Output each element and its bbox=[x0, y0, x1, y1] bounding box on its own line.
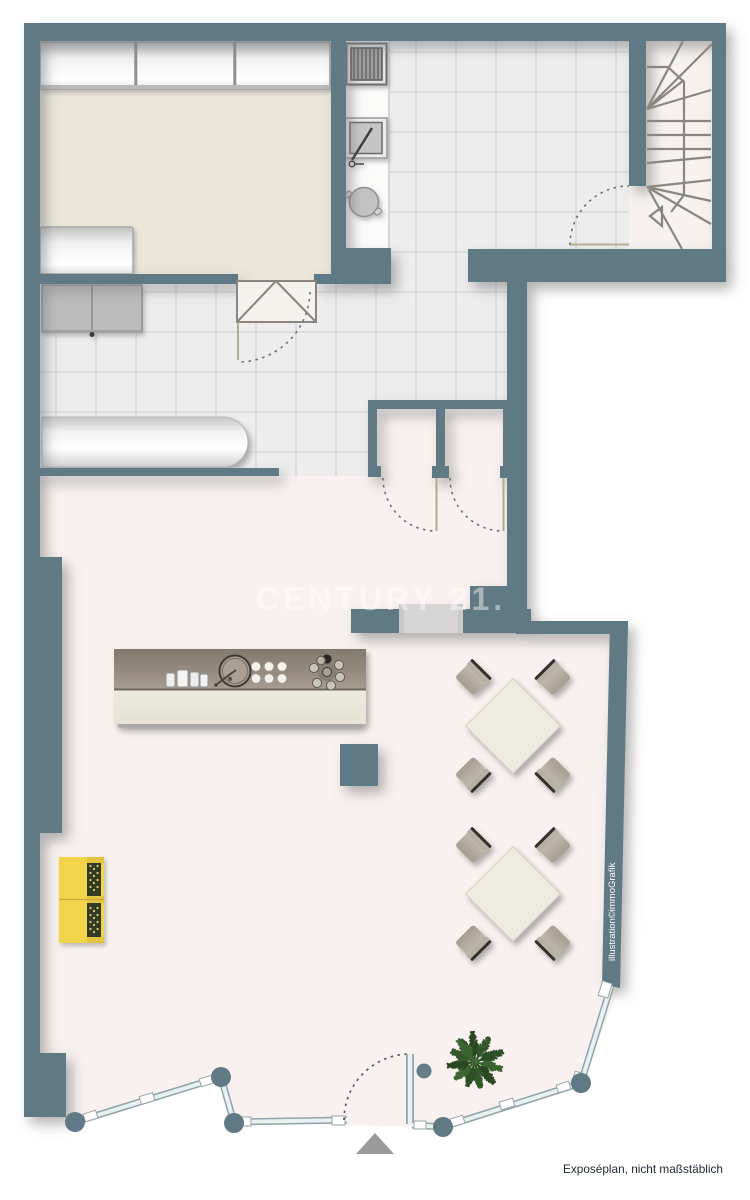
svg-text:CENTURY 21.: CENTURY 21. bbox=[256, 581, 506, 617]
svg-text:illustration©immoGrafik: illustration©immoGrafik bbox=[607, 862, 618, 961]
svg-text:Exposéplan, nicht maßstäblich: Exposéplan, nicht maßstäblich bbox=[563, 1162, 723, 1176]
